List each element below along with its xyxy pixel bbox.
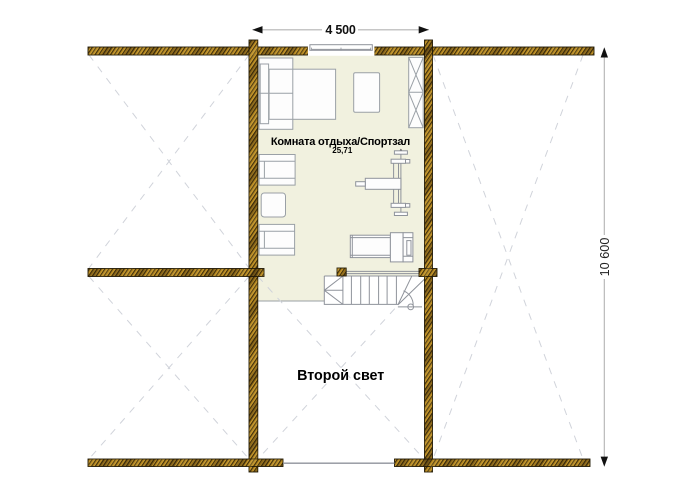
svg-text:4 500: 4 500	[325, 23, 356, 37]
svg-text:25,71: 25,71	[332, 146, 353, 155]
svg-text:Второй свет: Второй свет	[297, 368, 384, 384]
svg-text:10 600: 10 600	[598, 238, 612, 277]
